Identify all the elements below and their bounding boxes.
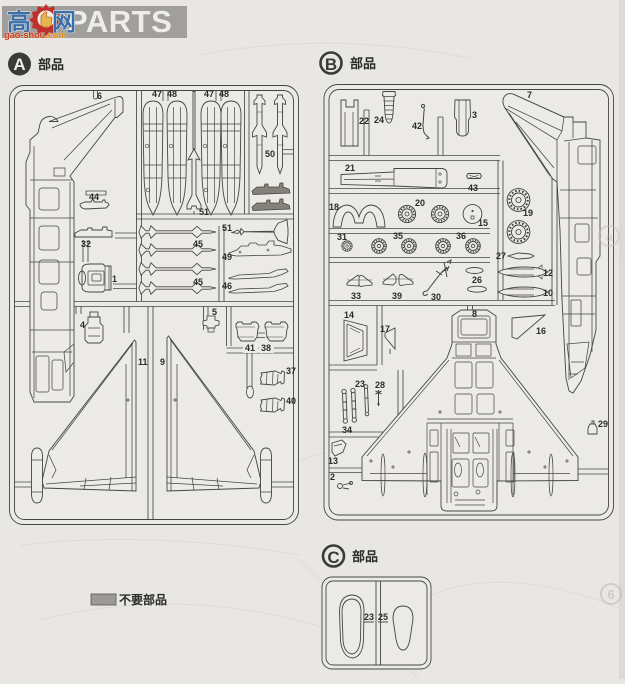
svg-text:6: 6 [97,91,102,101]
svg-text:1: 1 [112,274,117,284]
svg-text:45: 45 [193,277,203,287]
svg-text:44: 44 [89,192,99,202]
svg-text:51: 51 [199,207,209,217]
svg-text:48: 48 [167,89,177,99]
svg-text:45: 45 [193,239,203,249]
svg-text:A: A [13,55,25,74]
svg-text:27: 27 [496,251,506,261]
svg-text:31: 31 [337,232,347,242]
svg-text:40: 40 [286,396,296,406]
svg-text:部品: 部品 [38,57,64,72]
svg-text:23: 23 [355,379,365,389]
svg-text:不要部品: 不要部品 [119,592,167,607]
svg-text:26: 26 [472,275,482,285]
svg-text:35: 35 [393,231,403,241]
svg-text:28: 28 [375,380,385,390]
svg-text:33: 33 [351,291,361,301]
svg-text:32: 32 [81,239,91,249]
svg-text:43: 43 [468,183,478,193]
svg-text:12: 12 [543,268,553,278]
svg-text:50: 50 [265,149,275,159]
svg-text:2: 2 [330,472,335,482]
svg-text:47: 47 [204,89,214,99]
svg-text:48: 48 [219,89,229,99]
svg-text:11: 11 [138,357,148,367]
svg-text:42: 42 [412,121,422,131]
svg-text:13: 13 [328,456,338,466]
svg-text:B: B [325,55,337,74]
svg-text:16: 16 [536,326,546,336]
svg-text:部品: 部品 [352,549,378,564]
svg-text:24: 24 [374,115,384,125]
svg-text:18: 18 [329,202,339,212]
svg-text:部品: 部品 [350,56,376,71]
svg-text:8: 8 [472,309,477,319]
svg-text:gao-shou.com: gao-shou.com [4,30,67,41]
svg-text:34: 34 [342,425,352,435]
svg-text:23: 23 [364,612,374,622]
svg-text:29: 29 [598,419,608,429]
svg-text:21: 21 [345,163,355,173]
svg-text:30: 30 [431,292,441,302]
svg-text:25: 25 [378,612,388,622]
svg-text:19: 19 [523,208,533,218]
svg-text:47: 47 [152,89,162,99]
svg-text:C: C [327,548,339,567]
svg-text:37: 37 [286,366,296,376]
svg-text:51: 51 [222,223,232,233]
svg-text:4: 4 [80,320,85,330]
svg-text:5: 5 [212,307,217,317]
svg-text:3: 3 [472,110,477,120]
svg-text:7: 7 [527,90,532,100]
svg-text:22: 22 [359,116,369,126]
svg-text:38: 38 [261,343,271,353]
svg-text:9: 9 [160,357,165,367]
svg-text:14: 14 [344,310,354,320]
svg-text:46: 46 [222,281,232,291]
svg-text:39: 39 [392,291,402,301]
svg-text:PARTS: PARTS [67,4,172,39]
svg-text:20: 20 [415,198,425,208]
svg-text:17: 17 [380,324,390,334]
svg-text:6: 6 [607,587,614,602]
svg-text:49: 49 [222,252,232,262]
svg-text:10: 10 [543,288,553,298]
svg-text:15: 15 [478,218,488,228]
svg-text:36: 36 [456,231,466,241]
svg-text:41: 41 [245,343,255,353]
svg-text:a: a [605,229,613,244]
